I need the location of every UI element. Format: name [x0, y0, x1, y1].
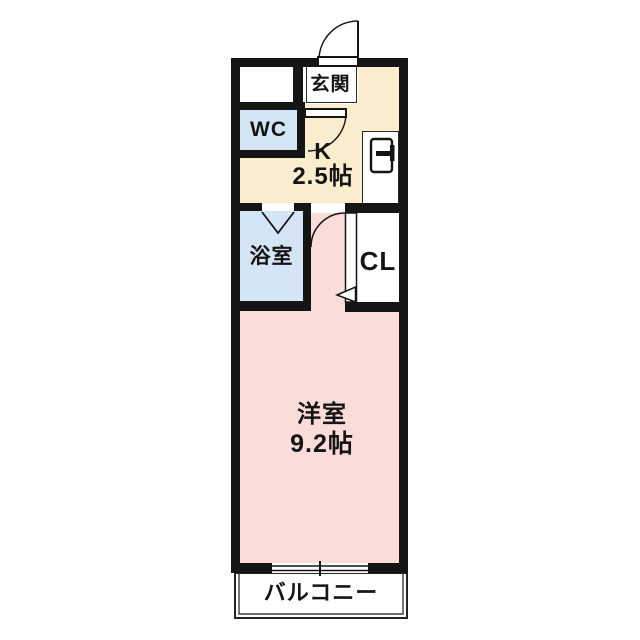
- wall-kitchen-room: [345, 203, 408, 213]
- refrigerator-space: [362, 131, 399, 207]
- floorplan-canvas: 玄関 WC K 2.5帖 浴室 CL 洋室 9.2帖 バルコニー: [0, 0, 640, 640]
- opening-room-door: [311, 203, 345, 213]
- wc-label: WC: [240, 117, 297, 141]
- balcony-label: バルコニー: [234, 581, 408, 605]
- opening-bathroom: [262, 203, 294, 211]
- wall-bottom: [231, 563, 408, 573]
- kitchen-label: K: [281, 139, 365, 163]
- wall-closet-bottom: [345, 302, 408, 312]
- closet-label: CL: [357, 247, 399, 275]
- wall-bath-bottom: [231, 301, 311, 311]
- entrance-label: 玄関: [303, 73, 358, 95]
- bathroom-label: 浴室: [240, 244, 303, 268]
- wall-bath-right: [303, 203, 311, 311]
- wall-wc-top: [231, 102, 305, 110]
- closet-door-panel: [346, 213, 357, 302]
- wall-right: [399, 58, 408, 573]
- opening-entrance: [318, 58, 358, 67]
- room-western-neck: [311, 213, 345, 311]
- wall-left: [231, 58, 240, 573]
- western-room-size-label: 9.2帖: [262, 430, 382, 458]
- entry-side-room: [240, 67, 293, 102]
- kitchen-size-label: 2.5帖: [281, 164, 365, 190]
- western-room-label: 洋室: [262, 402, 382, 428]
